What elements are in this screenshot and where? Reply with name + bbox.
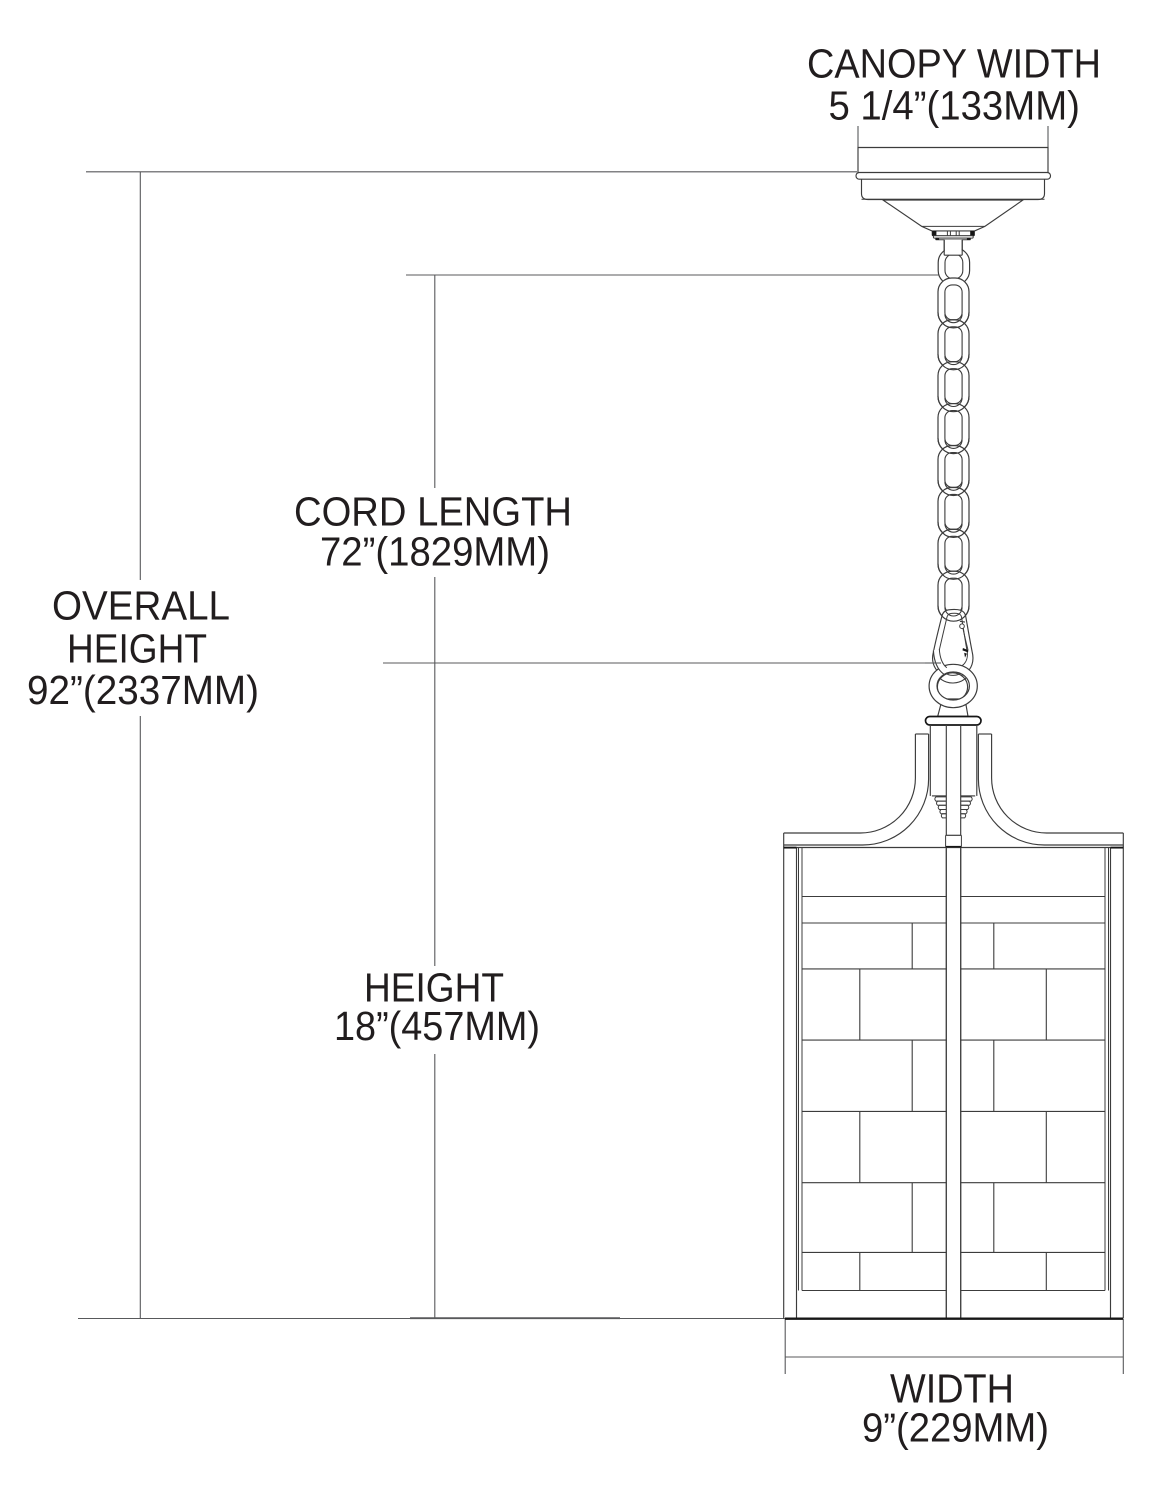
svg-text:5 1/4”(133MM): 5 1/4”(133MM) — [828, 83, 1080, 129]
svg-text:CANOPY WIDTH: CANOPY WIDTH — [807, 41, 1101, 87]
svg-text:9”(229MM): 9”(229MM) — [862, 1405, 1049, 1451]
svg-text:18”(457MM): 18”(457MM) — [334, 1003, 540, 1049]
svg-text:72”(1829MM): 72”(1829MM) — [320, 529, 550, 575]
svg-text:HEIGHT: HEIGHT — [67, 626, 207, 672]
svg-text:OVERALL: OVERALL — [52, 583, 230, 629]
svg-text:92”(2337MM): 92”(2337MM) — [27, 667, 259, 713]
